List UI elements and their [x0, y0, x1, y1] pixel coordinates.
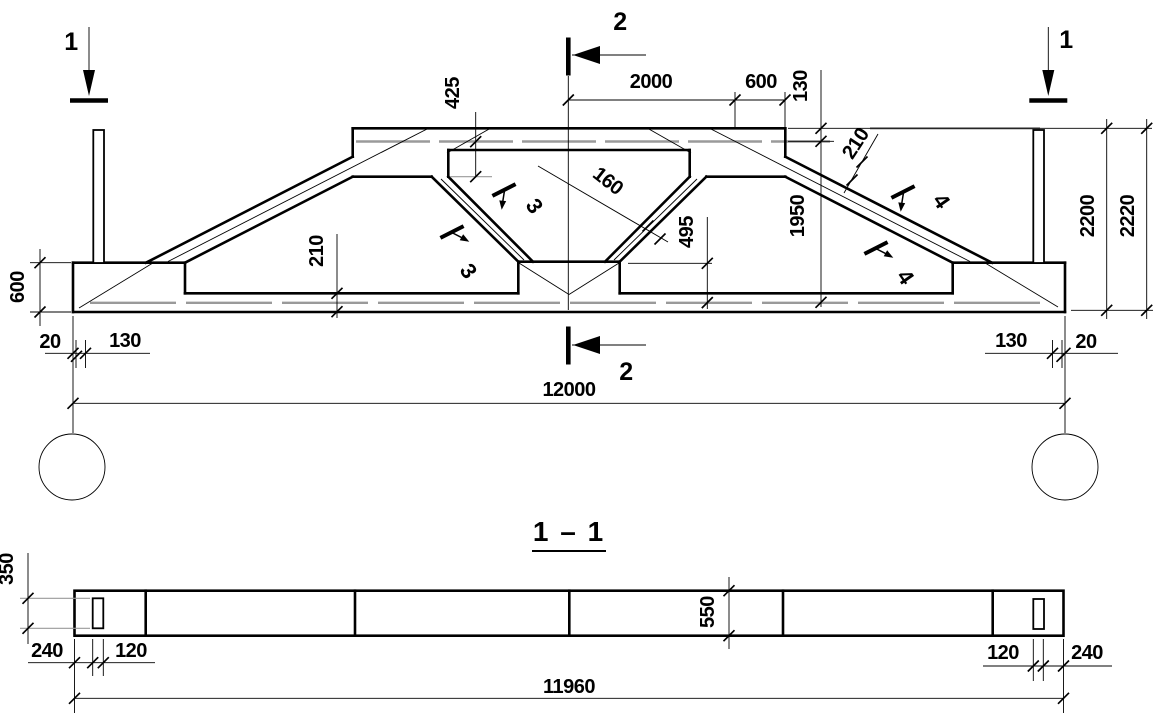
section-1-right-arrow: [1042, 70, 1054, 96]
weld-mark-3a-icon: [492, 184, 523, 211]
lifting-loop-left: [93, 130, 104, 263]
section-markers: 1 1 2 2: [64, 8, 1073, 386]
section-1-1-title: 1 – 1: [533, 516, 605, 547]
dim-20-right-label: 20: [1075, 331, 1097, 353]
dim-495-label: 495: [676, 216, 698, 248]
dim-20-left-label: 20: [39, 331, 61, 353]
dim-350-label: 350: [0, 553, 18, 585]
truss-girder-drawing: 2000 600 130 1950 2200 2220 600 210: [0, 0, 1161, 718]
dim-240-right-label: 240: [1071, 642, 1103, 664]
dim-240-left-label: 240: [31, 640, 63, 662]
weld-mark-3a-label: 3: [521, 194, 548, 218]
lifting-loop-right: [1033, 130, 1044, 263]
dim-130-left-label: 130: [109, 330, 141, 352]
dim-12000-label: 12000: [542, 379, 595, 401]
dim-120-left-label: 120: [115, 640, 147, 662]
dim-120-right-label: 120: [987, 642, 1019, 664]
dim-2200-label: 2200: [1077, 194, 1099, 237]
dim-130-right-label: 130: [995, 330, 1027, 352]
weld-mark-4a-icon: [891, 186, 922, 213]
section-2-bottom-arrow: [573, 336, 600, 354]
loop-hole-right: [1033, 599, 1044, 629]
section-2-top-label: 2: [613, 8, 626, 36]
weld-mark-3b-label: 3: [455, 259, 482, 283]
dim-160-label: 160: [588, 163, 627, 200]
loop-hole-left: [93, 598, 104, 628]
dim-210-chord-label: 210: [838, 124, 874, 163]
dim-425-label: 425: [442, 77, 464, 109]
section-1-left-arrow: [83, 70, 95, 96]
weld-mark-4a-label: 4: [928, 189, 956, 214]
weld-mark-3b-icon: [440, 226, 471, 253]
dim-600-left-label: 600: [7, 271, 29, 303]
section-1-right-label: 1: [1059, 26, 1073, 54]
girder-outline: [73, 128, 1065, 312]
dim-11960-label: 11960: [543, 676, 595, 698]
dim-210-bottom-label: 210: [306, 235, 328, 267]
drawing-canvas: 2000 600 130 1950 2200 2220 600 210: [0, 0, 1161, 718]
dim-550-label: 550: [697, 596, 719, 628]
dim-1950-label: 1950: [787, 194, 809, 237]
grid-bubble-left: [39, 434, 105, 500]
dim-600-top-label: 600: [745, 71, 777, 93]
section-2-top-arrow: [573, 46, 600, 64]
dim-2220-label: 2220: [1117, 194, 1139, 237]
dim-2000-label: 2000: [630, 71, 673, 93]
weld-mark-4b-icon: [864, 242, 895, 269]
section-1-1-view: 1 – 1 350 240 120 550: [0, 516, 1112, 713]
section-1-left-label: 1: [64, 28, 78, 56]
dimensions-elevation: 2000 600 130 1950 2200 2220 600 210: [7, 70, 1153, 500]
grid-bubble-right: [1032, 434, 1098, 500]
dim-130-slab-label: 130: [790, 70, 812, 102]
weld-mark-4b-label: 4: [892, 265, 920, 290]
section-2-bottom-label: 2: [619, 358, 632, 386]
